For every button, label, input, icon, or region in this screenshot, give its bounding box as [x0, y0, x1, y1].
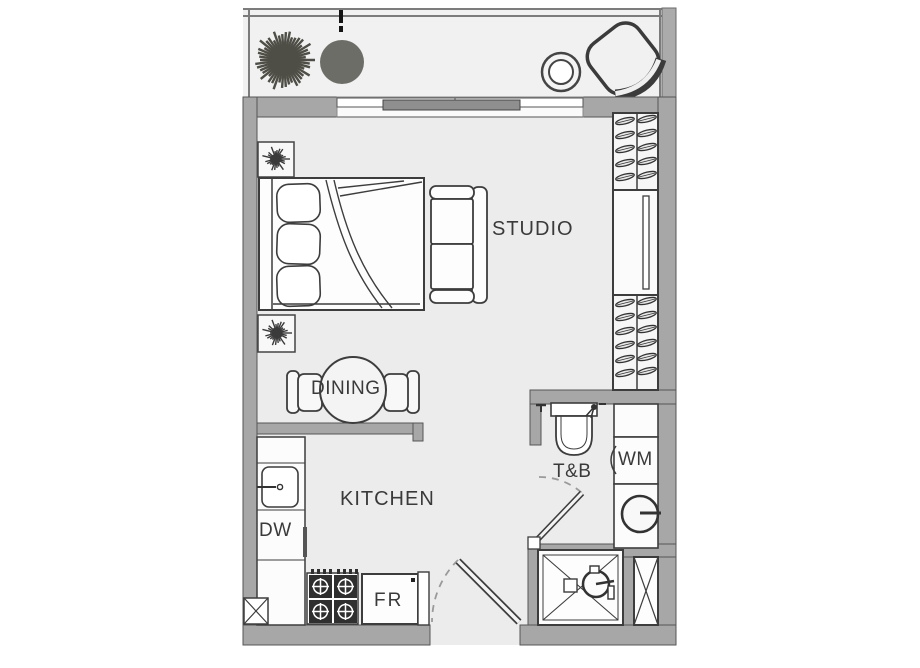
floor-plan-drawing [0, 0, 920, 668]
dining-chair [384, 374, 408, 411]
dining-label: DINING [311, 379, 381, 398]
ceiling-marker [339, 10, 343, 32]
sofa-icon [430, 186, 487, 303]
door-jamb [418, 572, 429, 625]
bed-icon [259, 178, 424, 310]
pillow-icon [276, 183, 320, 222]
wm-label: WM [618, 450, 653, 469]
ring-table-icon [542, 53, 580, 91]
stove-icon [307, 569, 358, 624]
dw-label: DW [259, 521, 292, 540]
mirror-icon [643, 196, 649, 289]
pillow-icon [276, 265, 320, 306]
pillow-icon [276, 223, 320, 264]
floor-plan: STUDIO DINING KITCHEN T&B WM DW FR [0, 0, 920, 668]
kitchen-label: KITCHEN [340, 489, 435, 509]
stool-icon [320, 40, 364, 84]
utility-shaft-icon [634, 557, 658, 625]
sliding-door [337, 97, 583, 117]
studio-label: STUDIO [492, 219, 574, 239]
door-jamb [528, 537, 540, 549]
fr-label: FR [374, 591, 403, 610]
wardrobe [613, 113, 658, 390]
corner-shaft-icon [244, 598, 268, 624]
balcony-side-wall [662, 8, 676, 97]
tb-label: T&B [553, 462, 591, 481]
shower-icon [538, 550, 623, 625]
